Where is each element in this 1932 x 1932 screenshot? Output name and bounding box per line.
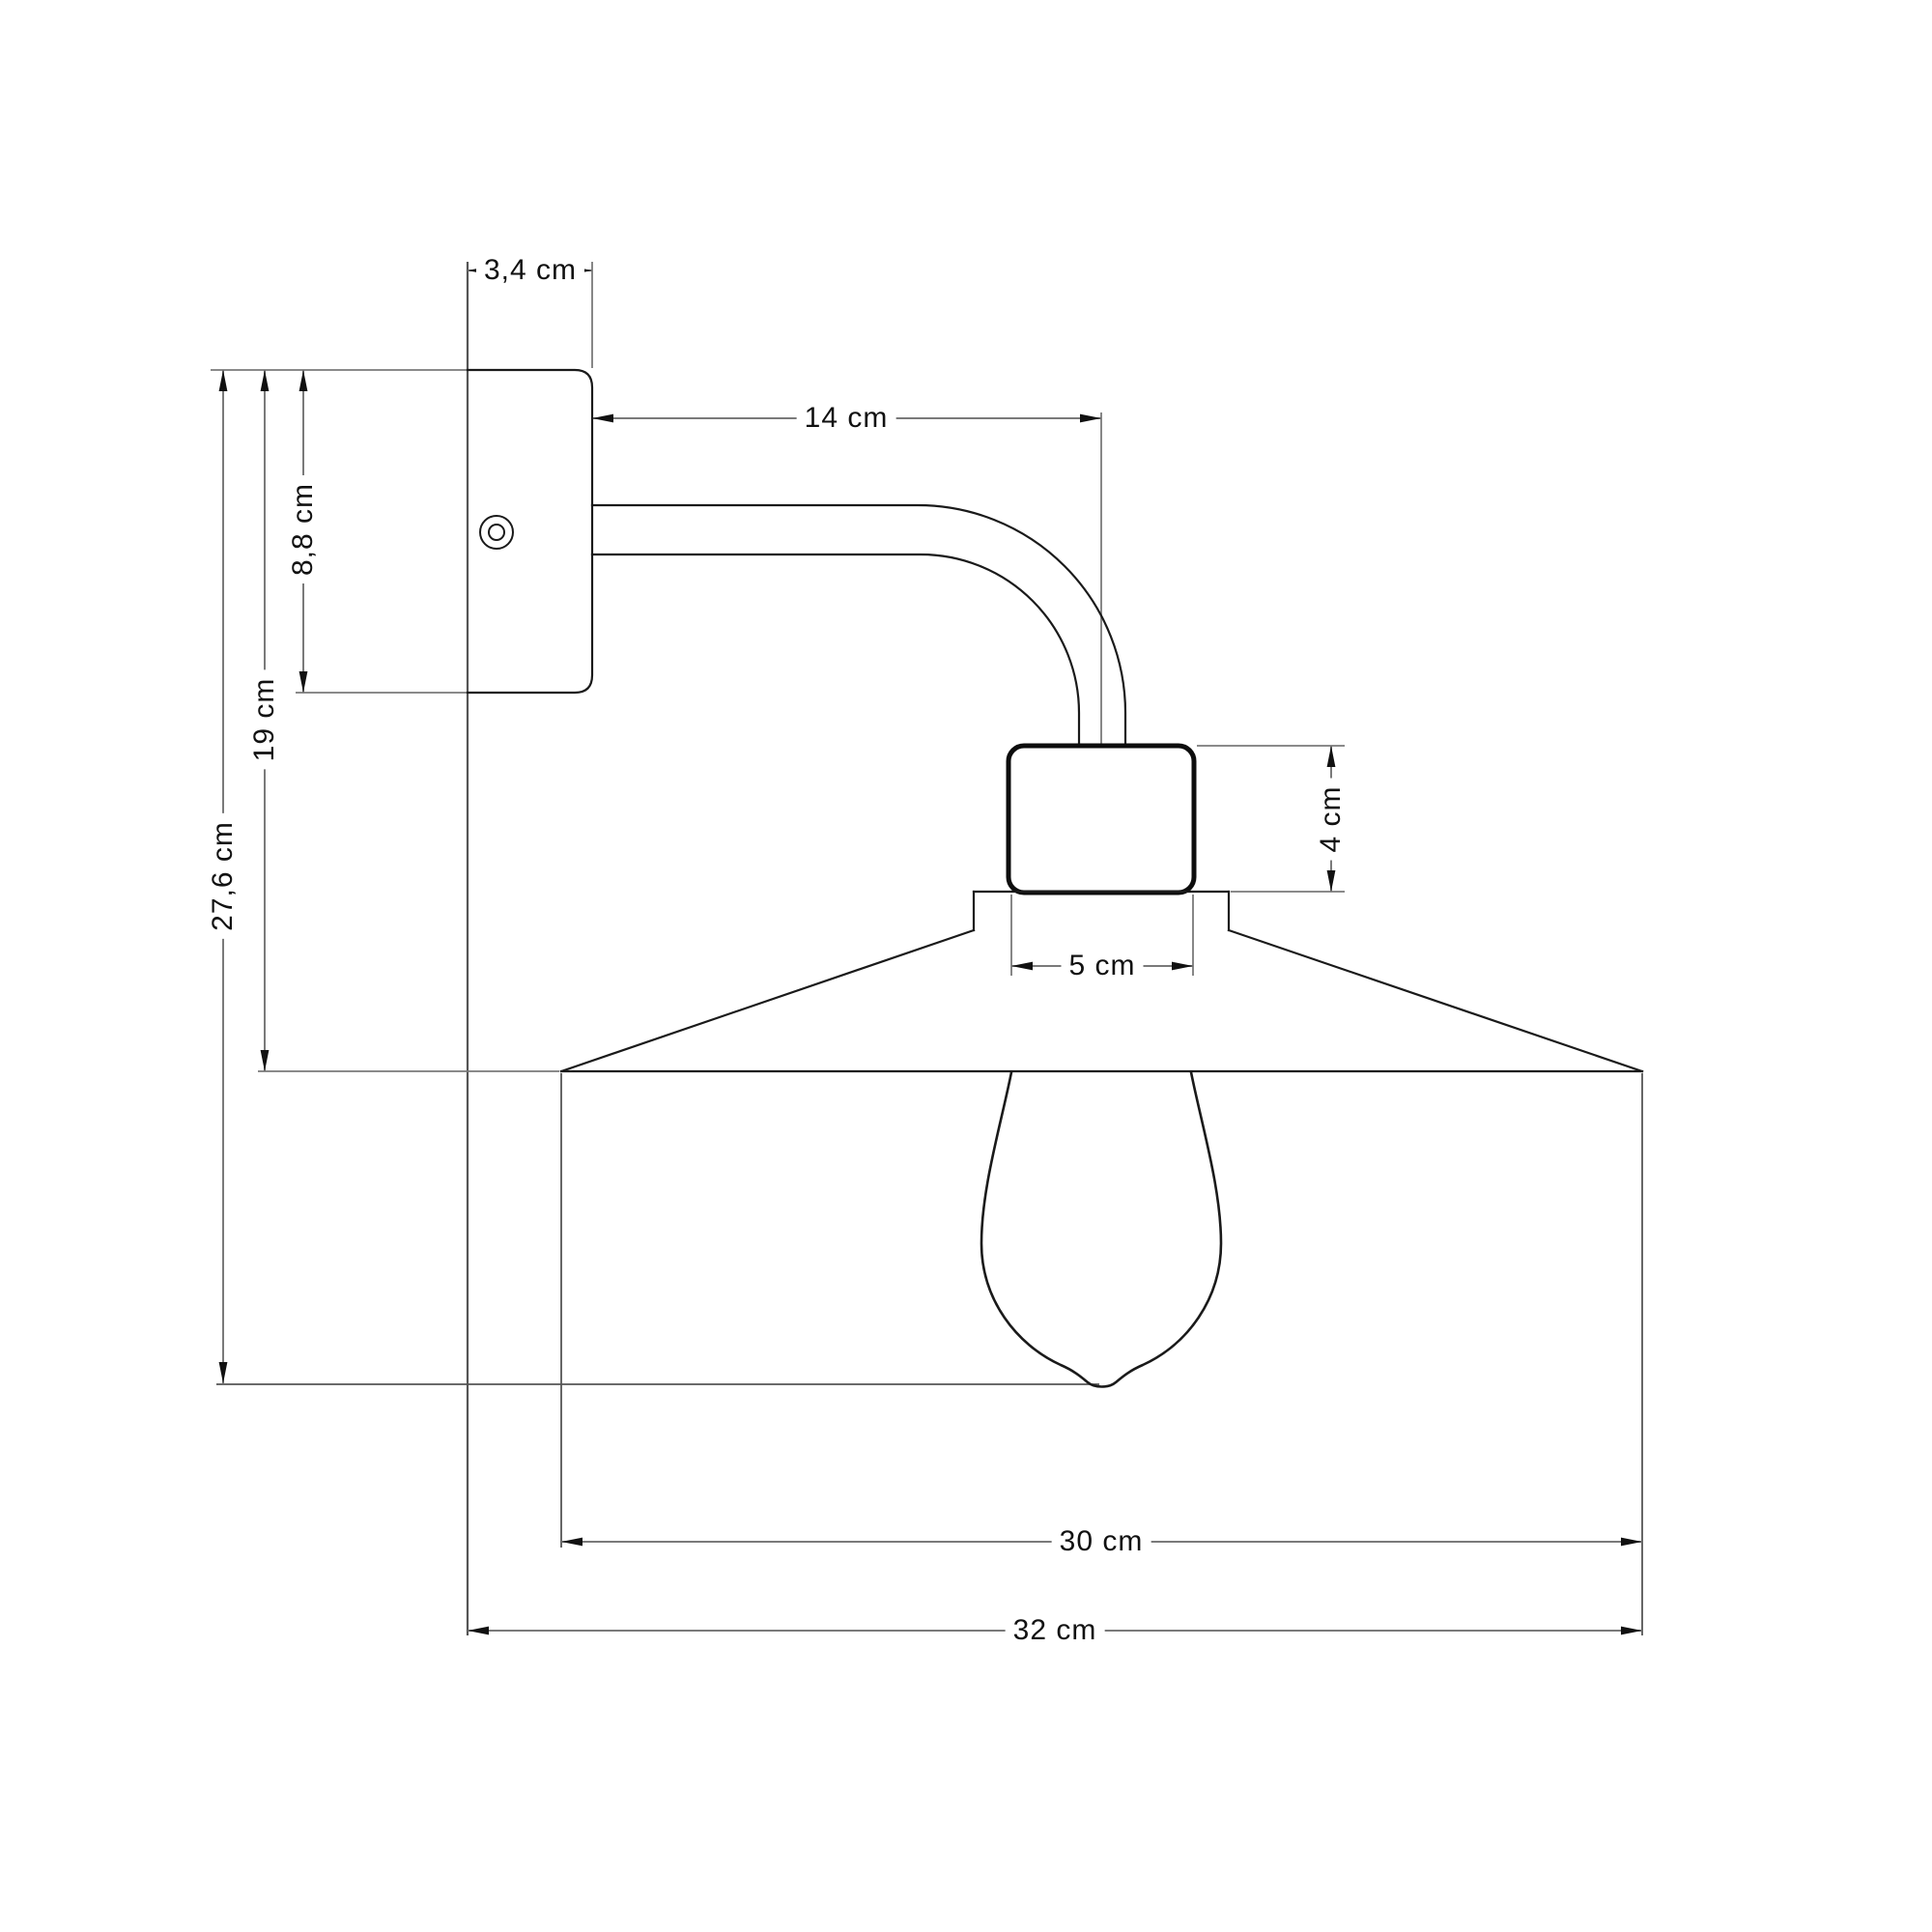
- lamp-outline: [468, 370, 1642, 1387]
- dim-socket-diameter-label: 5 cm: [1061, 948, 1143, 984]
- dim-plate-depth-label: 3,4 cm: [476, 252, 584, 289]
- dim-shade-diameter-label: 30 cm: [1052, 1523, 1151, 1560]
- extension-lines: [211, 262, 1642, 1635]
- light-bulb: [981, 1072, 1221, 1387]
- lamp-socket: [1009, 746, 1194, 893]
- dim-total-height-label: 27,6 cm: [205, 813, 241, 939]
- dim-plate-to-shade-label: 19 cm: [246, 670, 283, 770]
- screw-hole-center-icon: [489, 525, 504, 540]
- screw-hole-icon: [480, 516, 513, 549]
- dim-total-depth-label: 32 cm: [1006, 1612, 1105, 1649]
- shade-cone-left: [561, 930, 974, 1071]
- lamp-arm-inner: [592, 554, 1079, 745]
- wall-mount-plate: [468, 370, 592, 693]
- shade-cone-right: [1229, 930, 1642, 1071]
- dim-socket-height-label: 4 cm: [1313, 778, 1350, 860]
- lamp-arm-outer: [592, 505, 1125, 745]
- dim-plate-height-label: 8,8 cm: [285, 475, 322, 583]
- dimension-lines: [223, 270, 1642, 1631]
- wall-lamp-technical-drawing: 3,4 cm 14 cm 8,8 cm 19 cm 27,6 cm 4 cm 5…: [0, 0, 1932, 1932]
- drawing-linework: [0, 0, 1932, 1932]
- dim-arm-length-label: 14 cm: [797, 400, 896, 437]
